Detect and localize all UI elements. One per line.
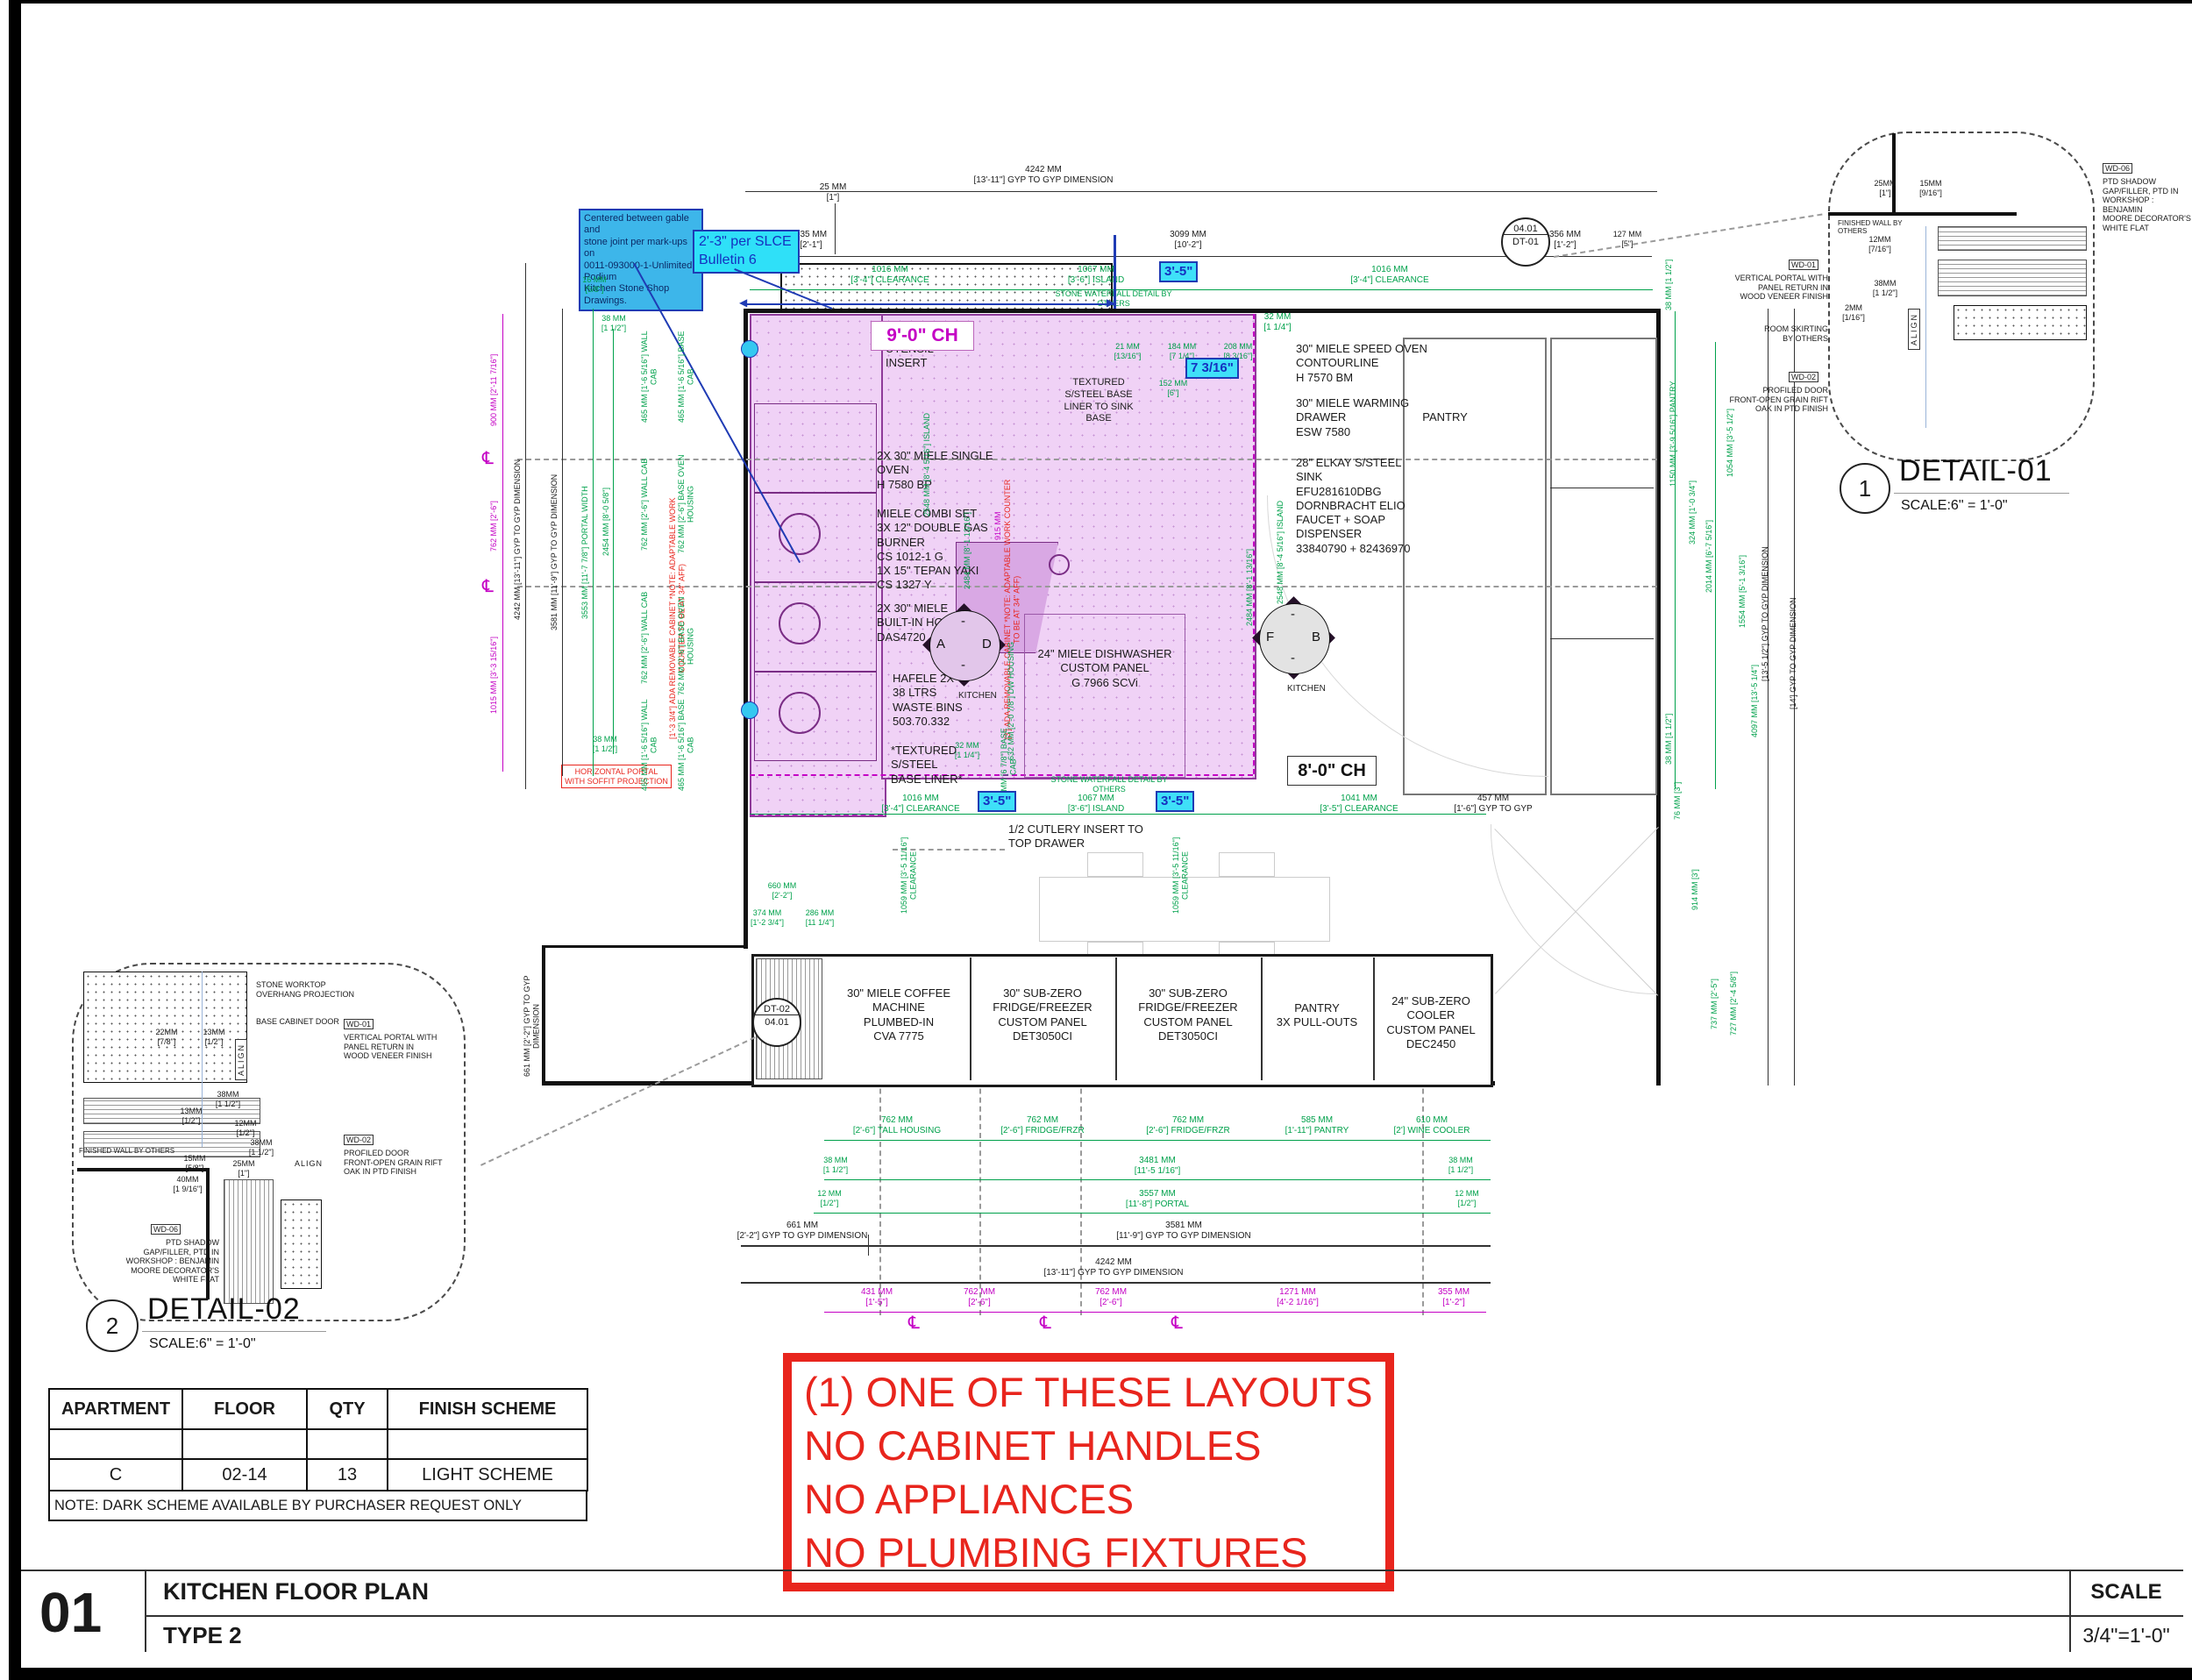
detail-scale: SCALE:6" = 1'-0"	[1901, 498, 2008, 514]
detail-sheet-ref: 04.01	[1503, 219, 1548, 235]
dim-label: 914 MM [3']	[1690, 842, 1700, 938]
appliance-label-fridge1: 30" SUB-ZERO FRIDGE/FREEZER CUSTOM PANEL…	[973, 986, 1112, 1043]
table-cell	[183, 1430, 308, 1460]
dim-label: 3557 MM [11'-8"] PORTAL	[1096, 1189, 1219, 1210]
title-underline	[1894, 493, 2069, 494]
plumbing-point-icon	[741, 701, 758, 719]
detail-stone-hatch	[281, 1199, 322, 1289]
finish-tag: WD-01	[344, 1019, 374, 1029]
dim-label: 3581 MM [11'-9"] GYP TO GYP DIMENSION	[550, 473, 559, 631]
appliance-label-fridge2: 30" SUB-ZERO FRIDGE/FREEZER CUSTOM PANEL…	[1119, 986, 1257, 1043]
table-cell	[388, 1430, 588, 1460]
burner-icon	[779, 602, 821, 644]
finish-tag: WD-06	[2103, 163, 2132, 174]
keyplan-letter: F	[1266, 630, 1274, 644]
dim-label: 1015 MM [3'-3 15/16"]	[489, 614, 499, 737]
dim-label: 152 MM [6"]	[1149, 379, 1198, 397]
table-note: NOTE: DARK SCHEME AVAILABLE BY PURCHASER…	[50, 1491, 587, 1521]
table-cell	[308, 1430, 388, 1460]
centerline-symbol: ℄	[482, 447, 494, 469]
dim-label: 762 MM [2'-6"] WALL CAB	[640, 580, 650, 694]
dim-label: 762 MM [2'-6"] FRIDGE/FRZR	[981, 1115, 1104, 1136]
dim-override-tag: 3'-5"	[1156, 791, 1194, 812]
drawing-title: KITCHEN FLOOR PLAN	[163, 1578, 429, 1605]
finish-tag: WD-06	[151, 1224, 181, 1235]
dim-line	[562, 309, 563, 776]
align-tag: ALIGN	[289, 1159, 328, 1169]
dim-line	[745, 191, 1657, 192]
dim-label: 324 MM [1'-0 3/4"]	[1688, 465, 1697, 561]
table-row	[50, 1430, 588, 1460]
dim-label: 15MM [5/8"]	[175, 1154, 214, 1172]
detail-number: 2	[88, 1301, 137, 1350]
dim-label: [13'-5 1/2"] GYP TO GYP DIMENSION	[1761, 526, 1770, 701]
dim-line	[741, 1245, 1491, 1247]
dim-label: 38MM [1 1/2"]	[240, 1138, 282, 1157]
cutlery-note: 1/2 CUTLERY INSERT TO TOP DRAWER	[1008, 822, 1157, 851]
column-header: QTY	[308, 1390, 388, 1430]
dim-override-tag: 3'-5"	[978, 791, 1016, 812]
dim-override-tag: 7 3/16"	[1185, 358, 1239, 379]
finish-note: PROFILED DOOR FRONT-OPEN GRAIN RIFT OAK …	[344, 1149, 456, 1177]
pantry-pullouts-label: PANTRY 3X PULL-OUTS	[1263, 1001, 1371, 1030]
scale-label: SCALE	[2069, 1580, 2183, 1605]
dim-label: 15MM [9/16"]	[1911, 179, 1950, 197]
dim-label: 21 MM [13/16"]	[1103, 342, 1152, 360]
titleblock-divider	[145, 1615, 2183, 1617]
table-cell	[50, 1430, 183, 1460]
dim-label: 38MM [1 1/2"]	[1864, 279, 1906, 297]
dim-label: 3099 MM [10'-2"]	[1140, 230, 1236, 251]
chair	[1087, 852, 1143, 877]
appliance-label-combi-set: MIELE COMBI SET 3X 12" DOUBLE GAS BURNER…	[877, 507, 1008, 593]
dim-label: 762 MM [2'-6"] TALL HOUSING	[836, 1115, 958, 1136]
detail-line	[1925, 226, 1926, 428]
dim-tick	[835, 203, 836, 254]
dim-label: 38 MM [1 1/2"]	[1436, 1156, 1485, 1174]
ceiling-height-tag: 8'-0" CH	[1287, 756, 1377, 786]
finish-tag: WD-02	[1789, 372, 1818, 382]
gable-line	[1114, 235, 1116, 309]
dim-label: 3581 MM [11'-9"] GYP TO GYP DIMENSION	[1105, 1221, 1263, 1242]
faucet-icon	[1049, 554, 1070, 575]
table-note-row: NOTE: DARK SCHEME AVAILABLE BY PURCHASER…	[50, 1491, 588, 1521]
dim-label: 286 MM [11 1/4"]	[794, 908, 846, 927]
dim-line	[824, 1140, 1491, 1141]
dim-label: 2014 MM [6'-7 5/16"]	[1704, 491, 1714, 623]
detail-scale: SCALE:6" = 1'-0"	[149, 1336, 256, 1352]
dim-label: 762 MM [2'-6"]	[1063, 1287, 1159, 1308]
dim-label: 4242 MM [13'-11"] GYP TO GYP DIMENSION	[1035, 1257, 1192, 1278]
wall	[544, 945, 745, 948]
dim-label: 38MM [1 1/2"]	[207, 1090, 249, 1108]
dim-label: 762 MM [2'-6"]	[931, 1287, 1028, 1308]
dim-override-tag: 3'-5"	[1159, 261, 1198, 282]
dim-label: 465 MM [1'-6 5/16"] WALL CAB	[640, 329, 658, 425]
detail-id: DT-02	[754, 1000, 800, 1015]
finish-note: PROFILED DOOR FRONT-OPEN GRAIN RIFT OAK …	[1723, 386, 1828, 414]
skirting-note: ROOM SKIRTING BY OTHERS	[1754, 324, 1828, 343]
appliance-label-sink: 28" ELKAY S/STEEL SINK EFU281610DBG DORN…	[1296, 456, 1454, 556]
centerline-symbol: ℄	[1171, 1312, 1183, 1334]
cabinet-divider	[1550, 488, 1654, 488]
dim-line	[593, 309, 594, 776]
dim-label: 762 MM [2'-6"] BASE OVEN HOUSING	[677, 580, 695, 712]
dim-line	[824, 1179, 1491, 1180]
drawing-number: 01	[39, 1580, 102, 1645]
appliance-label-cooler: 24" SUB-ZERO COOLER CUSTOM PANEL DEC2450	[1375, 994, 1487, 1051]
detail-sheet-ref: 04.01	[754, 1015, 800, 1028]
dim-label: 355 MM [1'-2"]	[1410, 1287, 1498, 1308]
dim-label: 1554 MM [5'-1 3/16"]	[1738, 535, 1747, 649]
centerline-symbol: ℄	[482, 575, 494, 597]
dim-label: 465 MM [1'-6 5/16"] BASE CAB	[677, 329, 695, 425]
dim-label: 12 MM [1/2"]	[805, 1189, 854, 1207]
detail-id: DT-01	[1503, 235, 1548, 247]
dim-label: 22MM [7/8"]	[147, 1028, 186, 1046]
appliance-label-speed-oven: 30" MIELE SPEED OVEN CONTOURLINE H 7570 …	[1296, 342, 1445, 385]
column-header: APARTMENT	[50, 1390, 183, 1430]
titleblock-divider	[145, 1570, 146, 1652]
stone-worktop-note: STONE WORKTOP OVERHANG PROJECTION	[256, 980, 370, 999]
keyplan-letter: A	[936, 637, 945, 651]
finish-note: PTD SHADOW GAP/FILLER, PTD IN WORKSHOP :…	[88, 1238, 219, 1285]
dim-label: 1059 MM [3'-5 11/16"] CLEARANCE	[900, 822, 918, 928]
dim-label: 737 MM [2'-5"]	[1710, 956, 1719, 1052]
finish-tag: WD-02	[344, 1135, 374, 1145]
finish-schedule-table: APARTMENT FLOOR QTY FINISH SCHEME C 02-1…	[48, 1388, 588, 1521]
drawing-subtitle: TYPE 2	[163, 1622, 242, 1649]
pantry-label: PANTRY	[1410, 410, 1480, 424]
align-tag: ALIGN	[1908, 309, 1920, 350]
dim-label: 38 MM [1 1/2"]	[589, 314, 638, 332]
dim-label: 1150 MM [3'-9 5/16"] PANTRY	[1669, 368, 1678, 500]
dim-label: 2484 MM [8'-1 13/16"]	[1245, 517, 1255, 658]
column-header: FINISH SCHEME	[388, 1390, 588, 1430]
detail-number-bubble: 1	[1840, 463, 1890, 514]
dim-label: 3553 MM [11'-7 7/8"] PORTAL WIDTH	[580, 473, 590, 631]
keyplan-marker: F B - -	[1252, 596, 1335, 680]
dim-line	[502, 314, 503, 772]
dim-label: 32 MM [1 1/4"]	[1249, 312, 1306, 333]
sink-liner-label: TEXTURED S/STEEL BASE LINER TO SINK BASE	[1050, 377, 1147, 425]
detail-panel-hatch	[224, 1179, 274, 1304]
dim-label: 13MM [1/2"]	[195, 1028, 233, 1046]
finish-note: VERTICAL PORTAL WITH PANEL RETURN IN WOO…	[1719, 274, 1828, 302]
dim-label: 610 MM [2'] WINE COOLER	[1377, 1115, 1487, 1136]
dim-label: 25MM [1"]	[224, 1159, 263, 1178]
finish-note: VERTICAL PORTAL WITH PANEL RETURN IN WOO…	[344, 1033, 456, 1061]
centerline-symbol: ℄	[908, 1312, 920, 1334]
detail-callout-bubble: DT-02 04.01	[752, 998, 801, 1047]
dim-label: [14'] GYP TO GYP DIMENSION	[1789, 579, 1798, 728]
dim-label: 465 MM [1'-6 5/16"] WALL CAB	[640, 697, 658, 794]
titleblock-top-line	[21, 1570, 2183, 1571]
detail-wall	[1828, 212, 2017, 216]
detail-number: 1	[1841, 465, 1889, 512]
dim-label: 4242 MM [13'-11"] GYP TO GYP DIMENSION	[513, 456, 523, 623]
table-cell-finish: LIGHT SCHEME	[388, 1460, 588, 1491]
red-note-line: (1) ONE OF THESE LAYOUTS	[804, 1365, 1373, 1419]
dim-label: 38 MM [1 1/2"]	[811, 1156, 860, 1174]
dim-label: 457 MM [1'-6"] GYP TO GYP	[1454, 794, 1533, 815]
dim-label: 38 MM [1 1/2"]	[1664, 254, 1674, 316]
dim-label: 2484 MM [8'-1 13/16"]	[963, 481, 972, 621]
dim-label: 12 MM [1/2"]	[1442, 1189, 1491, 1207]
dim-label: 1016 MM [3'-4"] CLEARANCE	[842, 265, 938, 286]
dim-label: 374 MM [1'-2 3/4"]	[741, 908, 794, 927]
run-divider	[970, 957, 971, 1080]
ceiling-height-tag: 9'-0" CH	[871, 321, 974, 351]
dim-label: 2454 MM [8'-0 5/8"]	[601, 456, 611, 587]
red-note-line: NO CABINET HANDLES	[804, 1419, 1373, 1472]
keyplan-dash: -	[961, 658, 965, 673]
dim-label: 40MM [1 9/16"]	[163, 1175, 212, 1193]
dim-label: 4097 MM [13'-5 1/4"]	[1750, 640, 1760, 763]
red-note-line: NO APPLIANCES	[804, 1472, 1373, 1526]
keyplan-letter: B	[1312, 630, 1320, 644]
dim-label: 2548 MM [8'-4 5/16"] ISLAND	[1276, 473, 1285, 631]
detail-panel-hatch	[1938, 226, 2087, 251]
dim-label: 1016 MM [3'-4"] CLEARANCE	[1342, 265, 1438, 286]
finish-tag: WD-01	[1789, 260, 1818, 270]
dim-label: 2548 MM [8'-4 5/16"] ISLAND	[922, 386, 932, 544]
burner-icon	[779, 692, 821, 734]
kitchen-label: KITCHEN	[958, 691, 997, 701]
detail-wall	[1892, 133, 1896, 214]
detail-number-bubble: 2	[86, 1299, 139, 1352]
appliance-label-coffee: 30" MIELE COFFEE MACHINE PLUMBED-IN CVA …	[833, 986, 964, 1043]
dim-label: 12MM [1/2"]	[226, 1119, 265, 1137]
dim-line	[1715, 342, 1716, 789]
dim-label: 762 MM [2'-6"] FRIDGE/FRZR	[1127, 1115, 1249, 1136]
dim-label: 661 MM [2'-2"] GYP TO GYP DIMENSION	[523, 965, 541, 1087]
centerline-symbol: ℄	[1040, 1312, 1051, 1334]
keyplan-dash: -	[1291, 607, 1295, 622]
dim-label: 900 MM [2'-11 7/16"]	[489, 333, 499, 447]
scale-value: 3/4"=1'-0"	[2069, 1624, 2183, 1648]
finished-wall-note: FINISHED WALL BY OTHERS	[1838, 219, 1917, 236]
column-header: FLOOR	[183, 1390, 308, 1430]
cabinet-divider	[1550, 638, 1654, 639]
dim-label: 2MM [1/16"]	[1834, 303, 1873, 322]
stone-waterfall-note: STONE WATERFALL DETAIL BY OTHERS	[1039, 775, 1179, 794]
dim-line	[750, 289, 1653, 290]
table-cell-apartment: C	[50, 1460, 183, 1491]
chair	[1219, 852, 1275, 877]
dim-label: 25 MM [1"]	[802, 182, 864, 203]
dim-label: 661 MM [2'-2"] GYP TO GYP DIMENSION	[737, 1221, 868, 1242]
dim-label: 1041 MM [3'-5"] CLEARANCE	[1311, 794, 1407, 815]
dim-line	[814, 1213, 1491, 1214]
dim-label: 762 MM [2'-6"] WALL CAB	[640, 447, 650, 561]
dim-label: 38 MM [1 1/2"]	[1664, 708, 1674, 770]
detail-stone-hatch	[1954, 305, 2087, 340]
slce-bulletin-note: 2'-3" per SLCE Bulletin 6	[693, 230, 800, 274]
dim-label: 915 MM	[993, 491, 1003, 561]
dishwasher-outline	[1024, 614, 1185, 778]
dim-label: 1271 MM [4'-2 1/16"]	[1236, 1287, 1359, 1308]
run-divider	[1115, 957, 1117, 1080]
dim-line	[741, 1282, 1491, 1284]
table-cell-floor: 02-14	[183, 1460, 308, 1491]
detail-title: DETAIL-02	[147, 1292, 301, 1327]
dim-label: 1059 MM [3'-5 11/16"] CLEARANCE	[1171, 822, 1190, 928]
red-note-line: NO PLUMBING FIXTURES	[804, 1526, 1373, 1579]
table-cell-qty: 13	[308, 1460, 388, 1491]
dim-label: 4242 MM [13'-11"] GYP TO GYP DIMENSION	[947, 165, 1140, 186]
dim-label: 13MM [1/2"]	[172, 1107, 210, 1125]
dim-line	[824, 1312, 1486, 1313]
tall-cabinet-stack	[1550, 338, 1657, 795]
dim-label: 431 MM [1'-5"]	[833, 1287, 921, 1308]
dim-label: 465 MM [1'-6 5/16"] BASE CAB	[677, 697, 695, 794]
detail-callout-bubble: 04.01 DT-01	[1501, 217, 1550, 267]
oven-stack	[754, 403, 877, 493]
title-underline	[142, 1331, 326, 1332]
dim-label: 38 MM [1 1/2"]	[580, 735, 630, 753]
dim-label: 3481 MM [11'-5 1/16"]	[1096, 1156, 1219, 1177]
dim-label: 1067 MM [3'-6"] ISLAND	[1048, 265, 1144, 286]
wall	[542, 945, 545, 1086]
dim-label: 32 MM [1 1/4"]	[943, 741, 992, 759]
detail-title: DETAIL-01	[1899, 454, 2053, 488]
dim-label: 762 MM [2'-6"] BASE OVEN HOUSING	[677, 438, 695, 570]
plumbing-point-icon	[741, 340, 758, 358]
dim-label: 16 MM [5/8"]	[570, 275, 619, 294]
dim-label: 727 MM [2'-4 5/8"]	[1729, 956, 1739, 1052]
appliance-label-dishwasher: 24" MIELE DISHWASHER CUSTOM PANEL G 7966…	[1028, 647, 1182, 690]
revision-note: Centered between gable and stone joint p…	[579, 209, 703, 311]
keyplan-dash: -	[1291, 651, 1295, 666]
arrow-left-icon: ◀	[739, 296, 747, 309]
appliance-label-single-oven: 2X 30" MIELE SINGLE OVEN H 7580 BP	[877, 449, 1008, 492]
finish-note: PTD SHADOW GAP/FILLER, PTD IN WORKSHOP :…	[2103, 177, 2192, 233]
kitchen-label: KITCHEN	[1287, 684, 1326, 694]
dim-label: 585 MM [1'-11"] PANTRY	[1261, 1115, 1373, 1136]
dim-label: 76 MM [3"]	[1673, 770, 1683, 831]
dim-label: 1016 MM [3'-4"] CLEARANCE	[872, 794, 969, 815]
dim-line	[613, 329, 614, 754]
table-header-row: APARTMENT FLOOR QTY FINISH SCHEME	[50, 1390, 588, 1430]
wall	[744, 309, 748, 949]
detail-panel-hatch	[1938, 260, 2087, 296]
dim-label: 12MM [7/16"]	[1861, 235, 1899, 253]
dim-label: 25MM [1"]	[1866, 179, 1904, 197]
align-tag: ALIGN	[235, 1039, 247, 1080]
finished-wall-note: FINISHED WALL BY OTHERS	[79, 1147, 175, 1155]
dim-label: 1067 MM [3'-6"] ISLAND	[1048, 794, 1144, 815]
red-markup-note: (1) ONE OF THESE LAYOUTS NO CABINET HAND…	[783, 1353, 1394, 1591]
table-row: C 02-14 13 LIGHT SCHEME	[50, 1460, 588, 1491]
dim-line	[525, 263, 526, 789]
dim-label: 762 MM [2'-6"]	[489, 478, 499, 574]
dim-arrow-line	[747, 303, 1115, 305]
dim-label: 660 MM [2'-2"]	[756, 881, 808, 900]
keyplan-letter: D	[982, 637, 992, 651]
dim-tick	[868, 1235, 869, 1256]
